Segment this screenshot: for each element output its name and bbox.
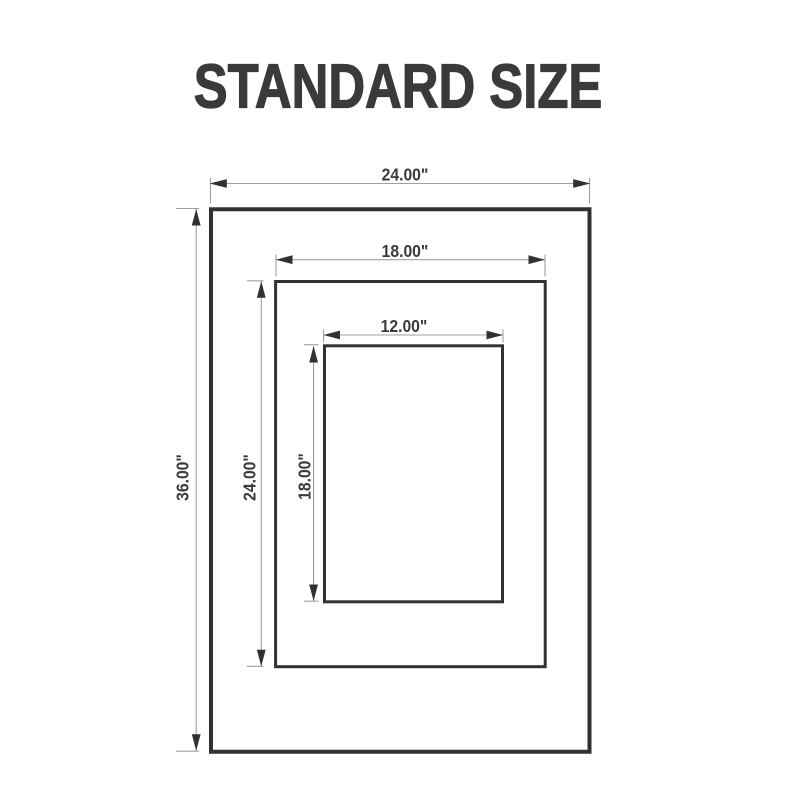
svg-text:18.00": 18.00" — [382, 243, 429, 262]
svg-text:24.00": 24.00" — [241, 454, 260, 501]
svg-text:12.00": 12.00" — [381, 317, 428, 336]
svg-text:36.00": 36.00" — [174, 454, 193, 501]
svg-text:STANDARD SIZE: STANDARD SIZE — [194, 53, 603, 122]
svg-text:24.00": 24.00" — [382, 166, 429, 185]
svg-text:18.00": 18.00" — [296, 453, 315, 500]
